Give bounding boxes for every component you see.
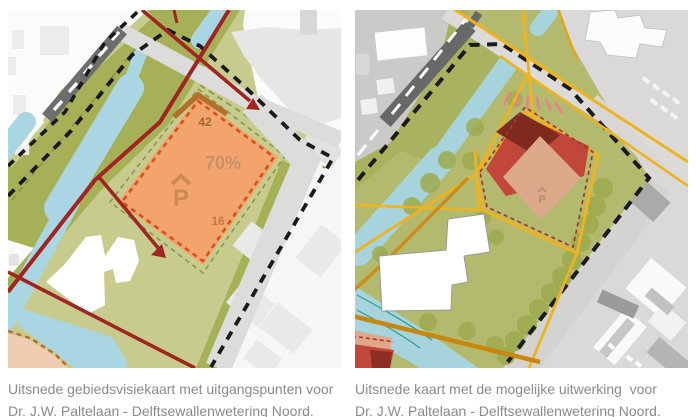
svg-text:P: P <box>173 185 189 212</box>
svg-text:P: P <box>538 194 545 206</box>
svg-text:70%: 70% <box>205 153 241 173</box>
svg-text:16: 16 <box>211 214 225 228</box>
svg-text:42: 42 <box>198 115 212 129</box>
